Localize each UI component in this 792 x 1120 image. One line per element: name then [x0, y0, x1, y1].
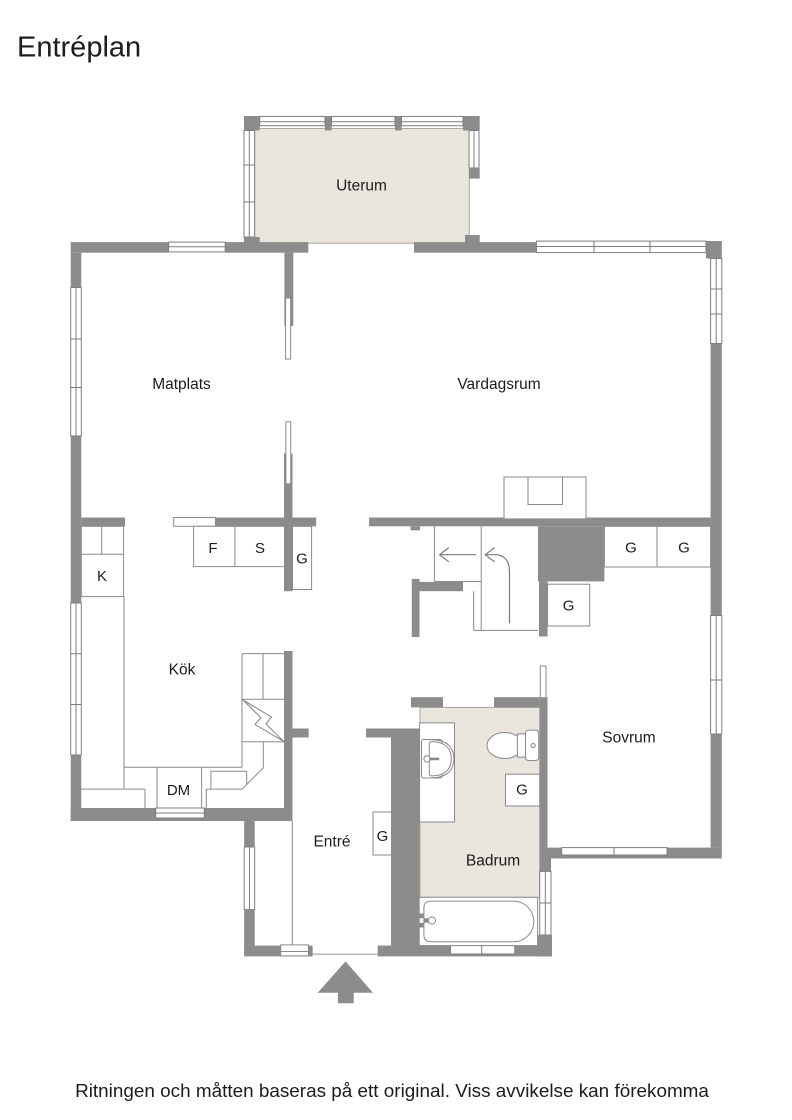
svg-text:Uterum: Uterum [336, 178, 387, 195]
svg-text:S: S [255, 540, 265, 557]
svg-text:G: G [377, 828, 389, 845]
svg-text:G: G [563, 598, 575, 615]
svg-text:Matplats: Matplats [152, 376, 211, 393]
svg-text:F: F [208, 540, 217, 557]
svg-text:Kök: Kök [169, 662, 196, 679]
svg-text:Vardagsrum: Vardagsrum [457, 376, 540, 393]
svg-text:Ritningen och måtten baseras p: Ritningen och måtten baseras på ett orig… [75, 1081, 709, 1102]
svg-text:G: G [516, 782, 528, 799]
svg-text:Badrum: Badrum [466, 853, 520, 870]
svg-text:Entré: Entré [313, 834, 350, 851]
svg-text:DM: DM [167, 782, 190, 799]
svg-text:G: G [678, 540, 690, 557]
svg-text:Entréplan: Entréplan [17, 32, 141, 64]
svg-text:Sovrum: Sovrum [602, 730, 655, 747]
svg-text:G: G [296, 551, 308, 568]
svg-text:G: G [625, 540, 637, 557]
svg-text:K: K [97, 568, 107, 585]
